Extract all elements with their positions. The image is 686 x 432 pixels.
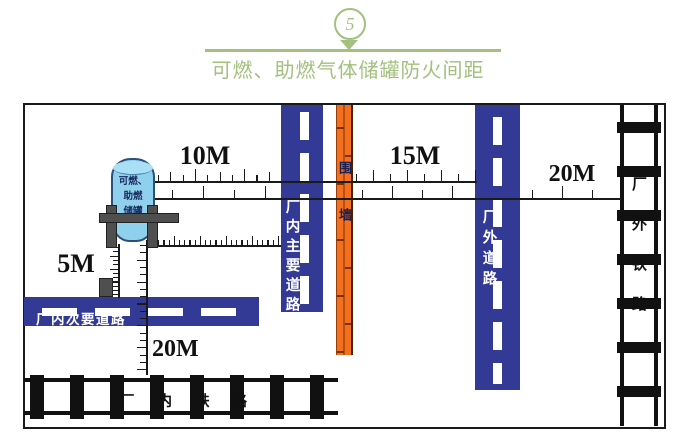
ruler-tick — [234, 190, 235, 198]
ruler-tick — [231, 240, 232, 245]
ruler-tick — [362, 190, 363, 198]
dimension-label-15m: 15M — [365, 141, 465, 171]
ruler-tick — [356, 174, 357, 181]
dimension-label-10m: 10M — [155, 141, 255, 171]
ruler-tick — [158, 175, 159, 181]
ruler-tick — [262, 240, 263, 245]
ruler-tick — [140, 267, 146, 268]
ruler-tick — [137, 260, 146, 261]
ruler-tick — [140, 311, 146, 312]
page-title: 可燃、助燃气体储罐防火间距 — [103, 54, 593, 83]
ruler-tick — [189, 240, 190, 245]
ruler-tick — [140, 318, 146, 319]
rail-line — [24, 378, 338, 382]
ruler-tick — [205, 240, 206, 245]
ruler-tick — [140, 252, 146, 253]
ruler-tick — [592, 190, 593, 198]
ruler-tick — [195, 240, 196, 245]
ruler-tick — [256, 175, 257, 181]
tank-stand-bar — [99, 213, 179, 223]
ruler-tick — [170, 172, 171, 181]
dimension-line-10m-15m — [150, 181, 477, 183]
ruler-tick — [137, 282, 146, 283]
tank-stand-foot — [99, 278, 113, 297]
ruler-tick — [247, 240, 248, 245]
tank-stand-post — [147, 205, 158, 248]
ruler-tick — [373, 170, 374, 181]
ruler-tick — [163, 240, 164, 245]
ruler-tick — [140, 274, 146, 275]
ruler-tick — [200, 236, 201, 245]
title-divider — [205, 49, 501, 52]
dimension-line-20m-right — [150, 198, 621, 200]
ruler-tick — [407, 170, 408, 181]
ruler-tick — [137, 369, 146, 370]
ruler-tick — [278, 236, 279, 245]
road-center-dashes — [300, 112, 309, 306]
rail-line — [24, 411, 338, 415]
rail-line — [620, 105, 624, 426]
ruler-tick — [137, 303, 146, 304]
ruler-tick — [158, 240, 159, 245]
ruler-tick — [273, 240, 274, 245]
ruler-tick — [184, 240, 185, 245]
ruler-tick — [236, 240, 237, 245]
ruler-tick — [221, 240, 222, 245]
ruler-tick — [137, 325, 146, 326]
fire-spacing-diagram: 5 可燃、助燃气体储罐防火间距 厂内主要道路 围墙 厂外道路 厂外铁路 厂内次要… — [0, 0, 686, 432]
dimension-label-20m-bottom: 20M — [152, 336, 199, 363]
ruler-tick — [220, 172, 221, 181]
ruler-tick — [140, 362, 146, 363]
ruler-tick — [265, 186, 266, 198]
ruler-tick — [390, 174, 391, 181]
ruler-tick — [113, 290, 118, 291]
ruler-tick — [140, 245, 146, 246]
factory-secondary-road-label: 厂内次要道路 — [36, 308, 126, 328]
ruler-tick — [392, 186, 393, 198]
ruler-tick — [458, 174, 459, 181]
ruler-tick — [169, 240, 170, 245]
ruler-tick — [269, 172, 270, 181]
ruler-tick — [140, 340, 146, 341]
ruler-tick — [252, 236, 253, 245]
external-railway-label: 厂外铁路 — [631, 176, 646, 336]
dimension-line-fine-ruler — [150, 245, 281, 247]
ruler-tick — [203, 186, 204, 198]
ruler-tick — [210, 240, 211, 245]
dimension-label-20m-right: 20M — [522, 161, 622, 188]
ruler-tick — [172, 190, 173, 198]
ruler-tick — [207, 175, 208, 181]
section-number-badge: 5 — [334, 8, 366, 40]
dimension-label-5m: 5M — [26, 249, 126, 279]
ruler-tick — [140, 333, 146, 334]
ruler-tick — [257, 240, 258, 245]
ruler-tick — [140, 355, 146, 356]
ruler-tick — [441, 170, 442, 181]
boundary-wall-label: 围墙 — [338, 161, 351, 255]
ruler-tick — [140, 296, 146, 297]
ruler-tick — [532, 190, 533, 198]
ruler-tick — [452, 186, 453, 198]
ruler-tick — [179, 240, 180, 245]
ruler-tick — [226, 236, 227, 245]
ruler-tick — [140, 289, 146, 290]
ruler-tick — [137, 347, 146, 348]
ruler-tick — [422, 190, 423, 198]
ruler-tick — [475, 170, 476, 181]
ruler-tick — [241, 240, 242, 245]
factory-main-road-label: 厂内主要道路 — [284, 199, 299, 316]
ruler-tick — [215, 240, 216, 245]
tank-stand-post — [106, 205, 117, 248]
ruler-tick — [232, 175, 233, 181]
rail-line — [654, 105, 658, 426]
ruler-tick — [174, 236, 175, 245]
ruler-tick — [183, 175, 184, 181]
ruler-tick — [424, 174, 425, 181]
dimension-line-20m-bottom — [146, 240, 148, 375]
external-road-label: 厂外道路 — [481, 209, 496, 291]
ruler-tick — [267, 240, 268, 245]
internal-railway-label: 厂内铁路 — [120, 390, 270, 411]
ruler-tick — [113, 286, 118, 287]
